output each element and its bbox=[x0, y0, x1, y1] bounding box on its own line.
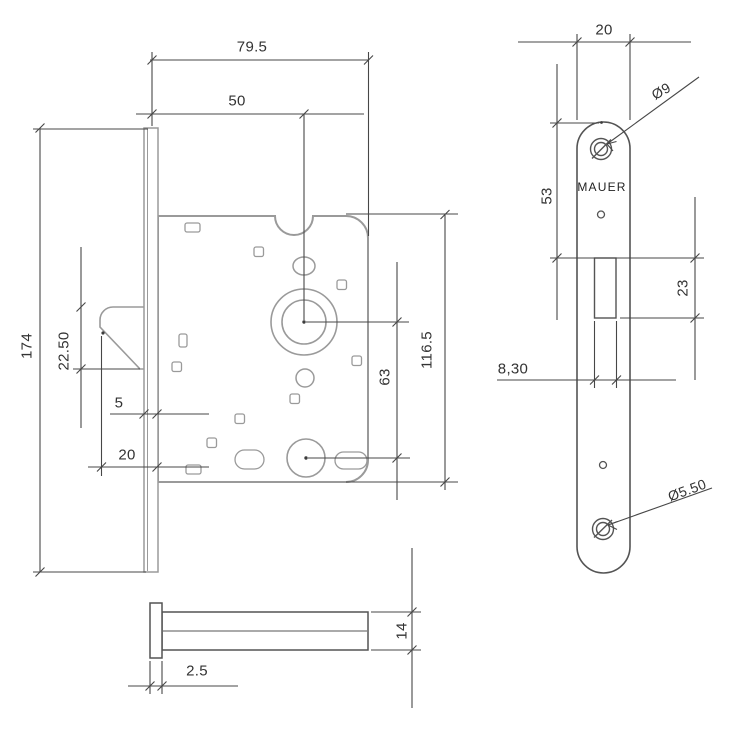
latch-slot bbox=[595, 258, 617, 318]
faceplate-apex-mark bbox=[600, 121, 603, 124]
faceplate-view bbox=[577, 121, 630, 573]
hub-center-mark bbox=[302, 320, 305, 323]
drawing-geometry bbox=[0, 0, 738, 738]
spindle-center-mark bbox=[304, 456, 307, 459]
technical-drawing: 79.5 50 174 22.50 5 20 63 116.5 2.5 14 2… bbox=[0, 0, 738, 738]
forend-strip bbox=[144, 128, 158, 572]
side-view bbox=[150, 603, 368, 658]
lock-case-view bbox=[100, 128, 368, 572]
faceplate-outline bbox=[577, 122, 630, 573]
pin-hole bbox=[296, 369, 314, 387]
side-view-forend bbox=[150, 603, 162, 658]
latch-bevel-mark bbox=[101, 331, 104, 334]
